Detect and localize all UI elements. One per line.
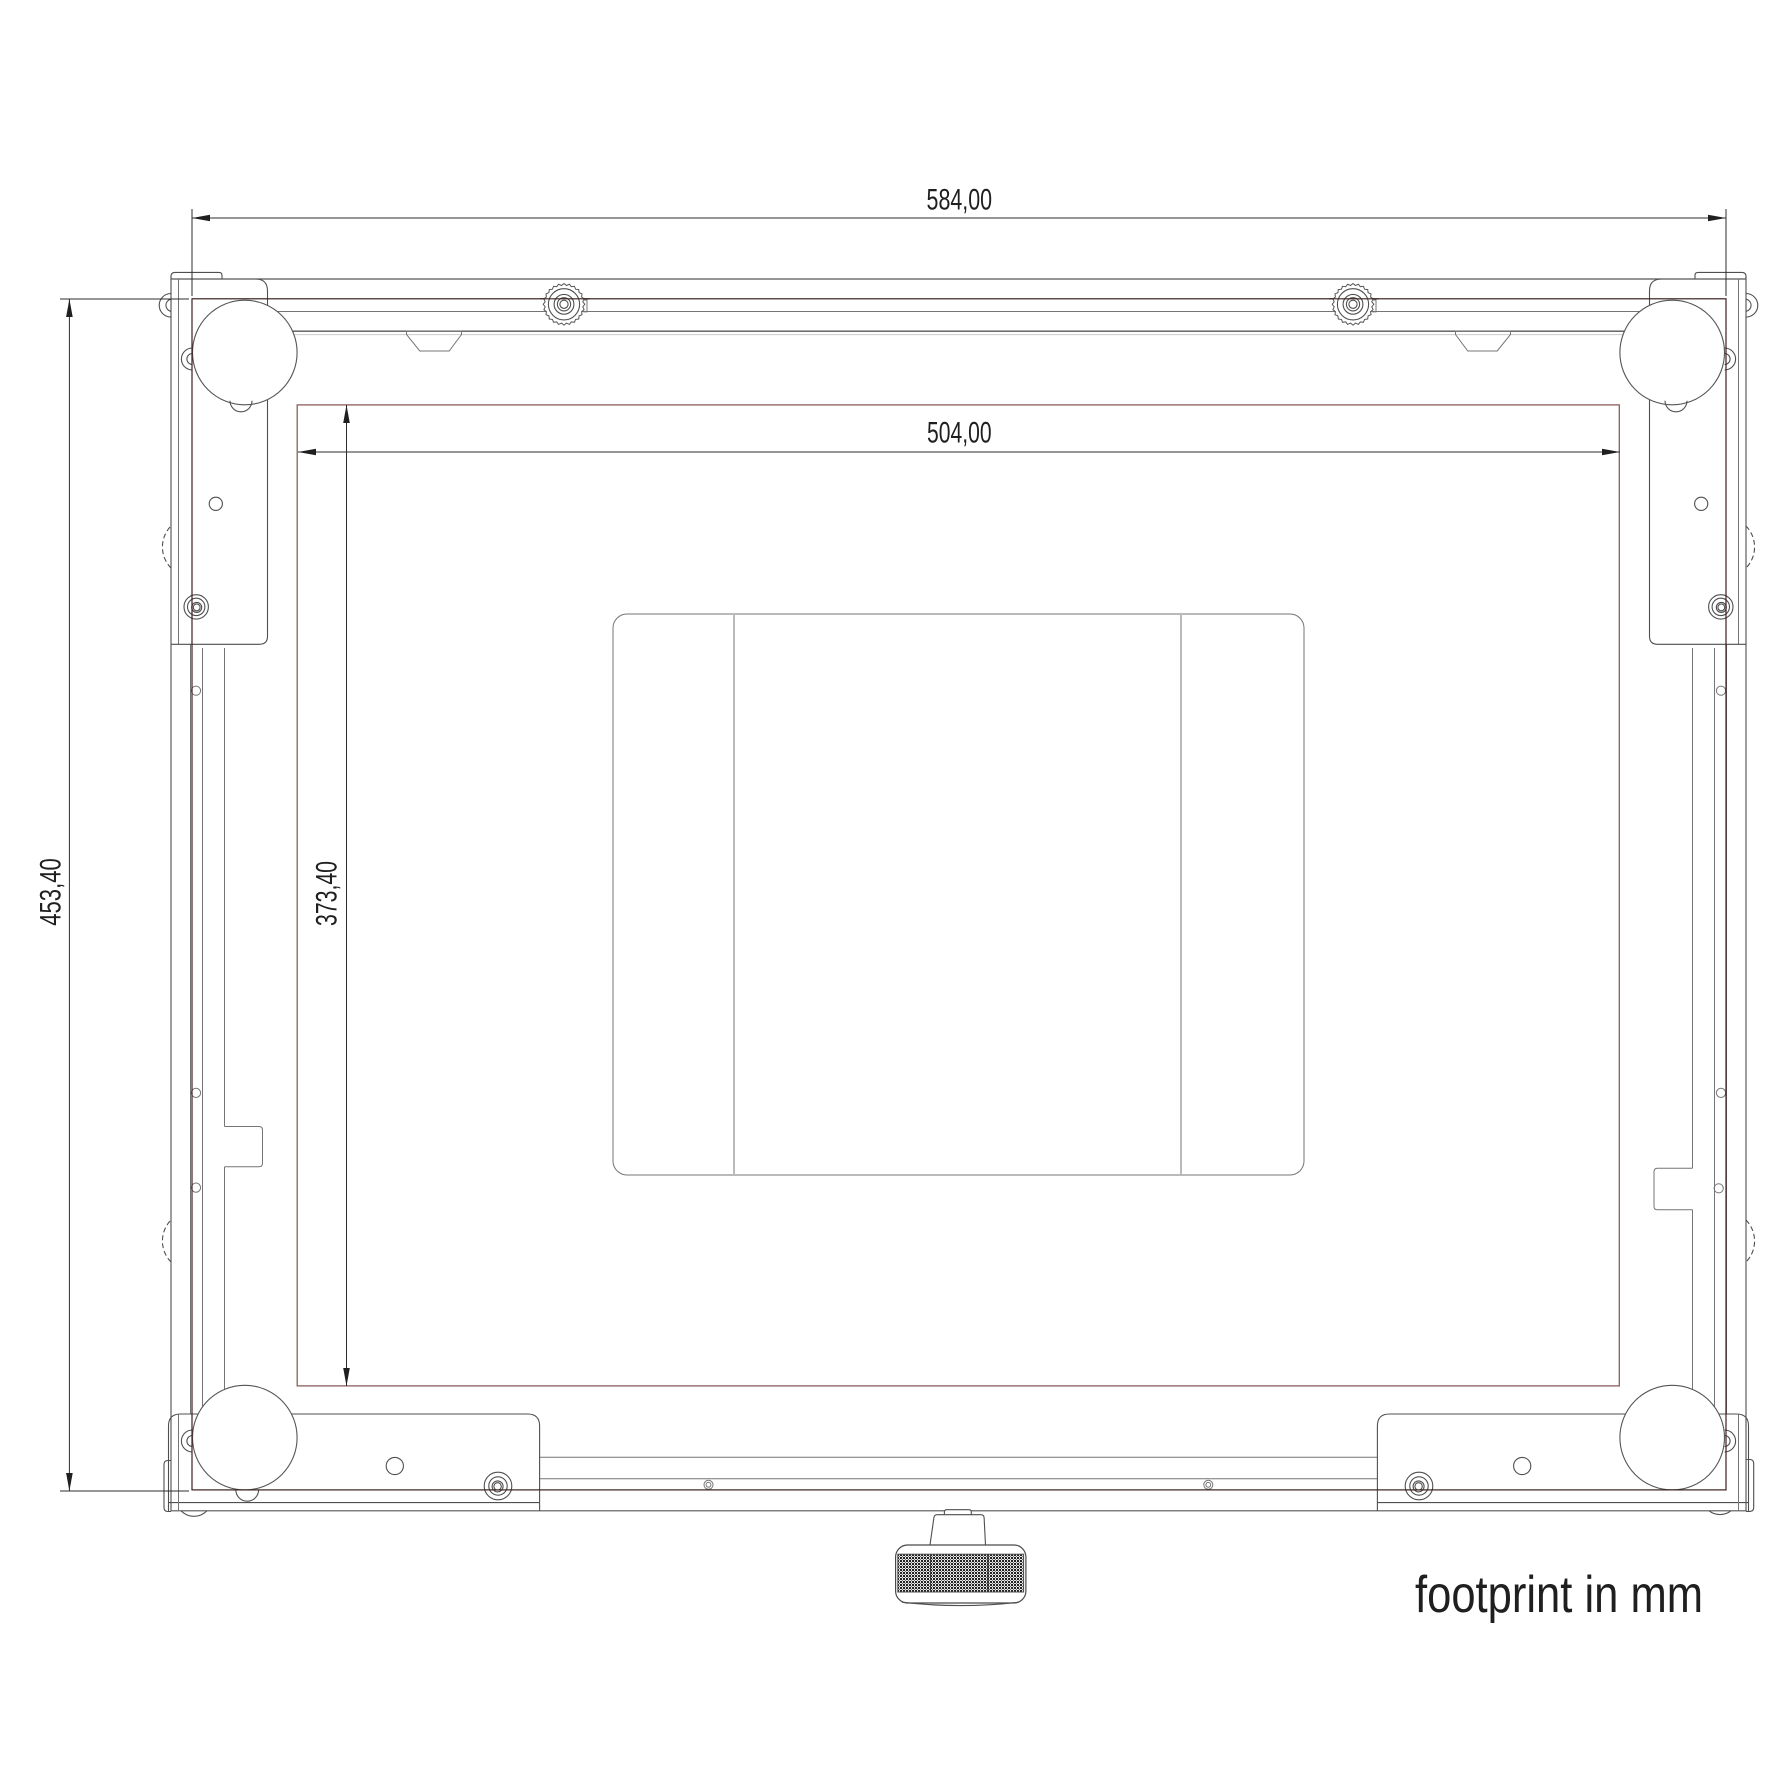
- svg-text:584,00: 584,00: [927, 183, 993, 216]
- svg-text:footprint in mm: footprint in mm: [1415, 1566, 1703, 1624]
- svg-text:453,40: 453,40: [34, 858, 67, 926]
- svg-text:373,40: 373,40: [310, 861, 343, 926]
- svg-text:504,00: 504,00: [927, 416, 992, 449]
